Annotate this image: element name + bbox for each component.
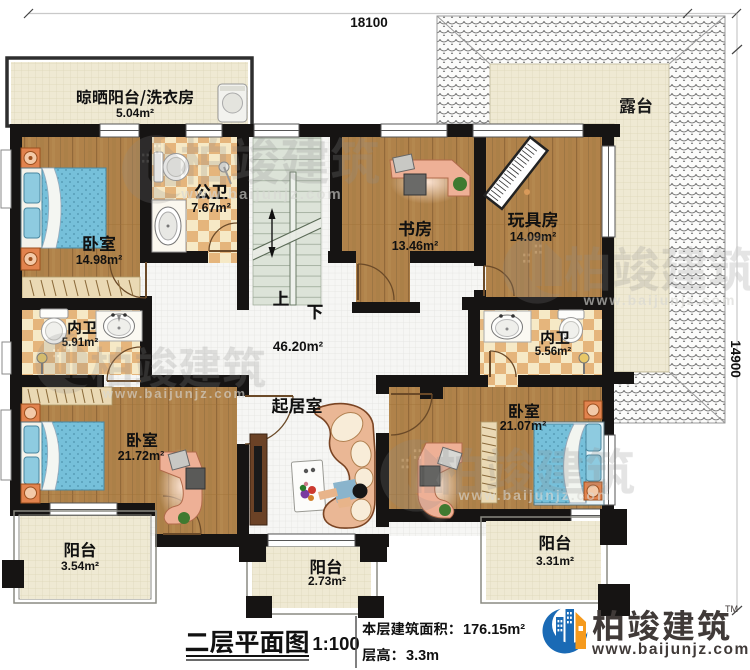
svg-text:5.56m²: 5.56m² [535,346,572,358]
svg-text:13.46m²: 13.46m² [392,239,439,253]
svg-text:1:100: 1:100 [312,633,359,654]
svg-text:21.72m²: 21.72m² [118,449,165,463]
svg-text:www.baijunjz.com: www.baijunjz.com [180,186,342,203]
svg-text:3.3m: 3.3m [406,648,439,664]
svg-text:21.07m²: 21.07m² [500,419,547,433]
svg-text:46.20m²: 46.20m² [273,339,324,354]
svg-text:TM: TM [725,604,738,614]
svg-text:www.baijunjz.com: www.baijunjz.com [583,292,737,308]
svg-text:2.73m²: 2.73m² [308,574,346,588]
svg-text:14900: 14900 [728,340,743,378]
svg-text:3.31m²: 3.31m² [536,554,574,568]
svg-text:www.baijunjz.com: www.baijunjz.com [102,386,247,401]
svg-text:18100: 18100 [350,15,388,30]
svg-text:14.98m²: 14.98m² [76,253,123,267]
svg-text:176.15m²: 176.15m² [463,622,525,638]
svg-text:www.baijunjz.com: www.baijunjz.com [458,487,612,503]
svg-text:3.54m²: 3.54m² [61,559,99,573]
svg-text:7.67m²: 7.67m² [191,201,231,215]
svg-text:www.baijunjz.com: www.baijunjz.com [591,641,750,658]
svg-text:5.04m²: 5.04m² [116,106,154,120]
